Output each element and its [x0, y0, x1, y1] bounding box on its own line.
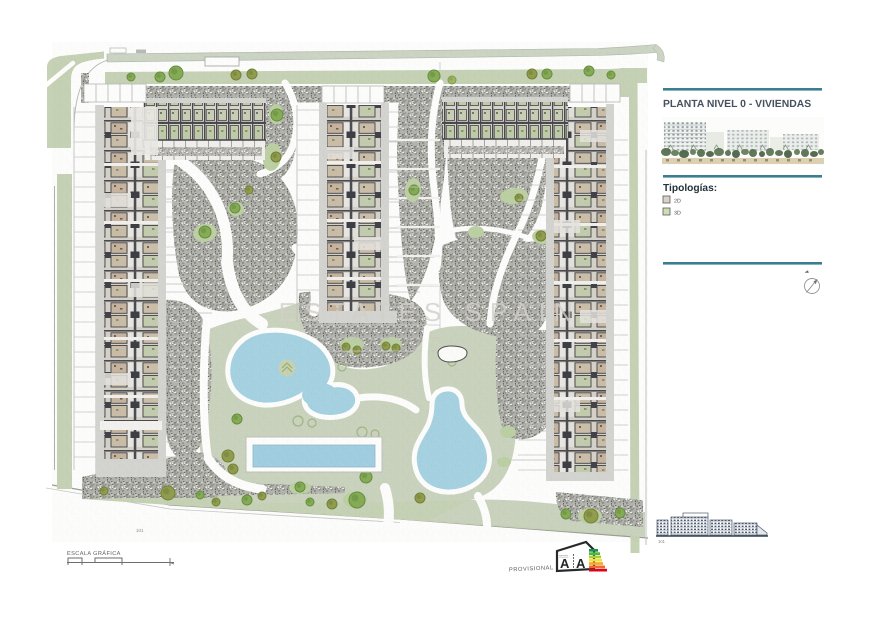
- svg-text:Tipologías:: Tipologías:: [663, 183, 717, 194]
- svg-text:A: A: [560, 556, 570, 571]
- svg-text:2D: 2D: [674, 199, 681, 205]
- svg-text:101: 101: [658, 539, 666, 544]
- svg-text:PLANTA NIVEL 0 - VIVIENDAS: PLANTA NIVEL 0 - VIVIENDAS: [663, 99, 811, 110]
- svg-text:101: 101: [136, 528, 144, 533]
- svg-text:ESCALA GRÁFICA: ESCALA GRÁFICA: [67, 550, 121, 557]
- svg-text:-ESTATES SPAIN: -ESTATES SPAIN: [262, 297, 581, 327]
- svg-text:A: A: [576, 556, 586, 571]
- svg-text:3D: 3D: [674, 211, 681, 217]
